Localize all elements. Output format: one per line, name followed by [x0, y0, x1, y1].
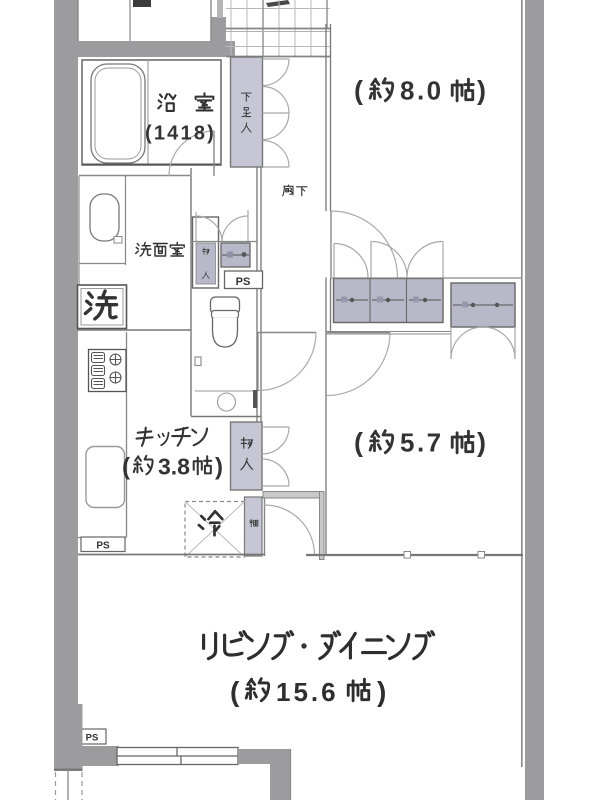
svg-text:(1418): (1418) [145, 123, 216, 145]
svg-text:5.7: 5.7 [400, 428, 444, 458]
svg-text:(: ( [354, 76, 363, 106]
svg-text:(: ( [122, 454, 130, 481]
svg-text:3.8: 3.8 [158, 454, 190, 480]
svg-text:PS: PS [86, 733, 99, 744]
svg-text:): ) [477, 76, 486, 106]
svg-text:(: ( [354, 428, 363, 458]
svg-text:15.6: 15.6 [276, 677, 339, 707]
svg-text:(: ( [230, 676, 240, 707]
svg-text:PS: PS [96, 541, 110, 552]
svg-text:PS: PS [236, 276, 251, 288]
svg-text:): ) [477, 428, 486, 458]
svg-text:): ) [215, 454, 223, 481]
svg-text:8.0: 8.0 [400, 76, 444, 106]
svg-text:): ) [377, 676, 386, 707]
